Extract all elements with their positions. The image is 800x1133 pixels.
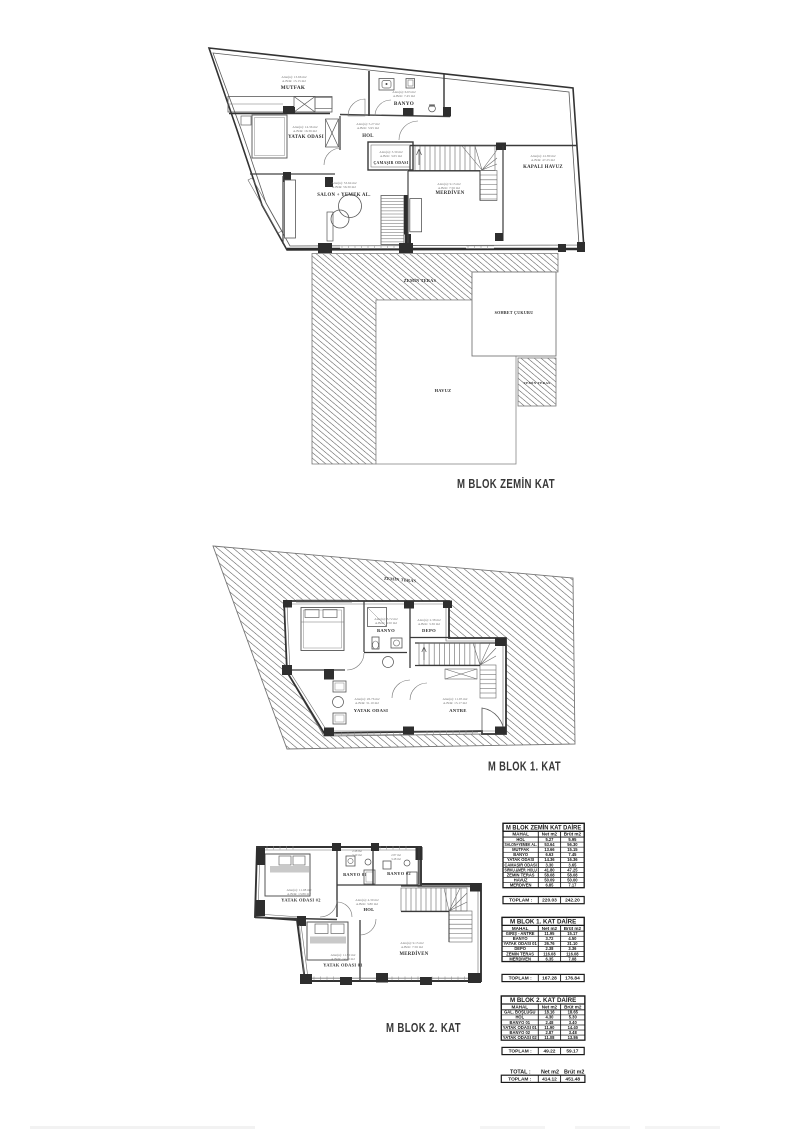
svg-text:MERDİVEN: MERDİVEN (399, 951, 428, 957)
svg-text:A.Brüt: 47.25 m2: A.Brüt: 47.25 m2 (531, 158, 555, 162)
svg-text:ANTRE: ANTRE (449, 708, 467, 713)
svg-text:TOPLAM :: TOPLAM : (509, 898, 532, 904)
svg-text:ZEMİN TERAS: ZEMİN TERAS (404, 278, 437, 283)
svg-text:A.Brüt: 7.56 m2: A.Brüt: 7.56 m2 (401, 945, 424, 949)
svg-text:A.Brüt: 15.15 m2: A.Brüt: 15.15 m2 (282, 79, 306, 83)
svg-text:176.84: 176.84 (565, 976, 580, 982)
svg-text:MAHAL: MAHAL (512, 1004, 529, 1009)
svg-text:3.40 m2: 3.40 m2 (352, 853, 362, 857)
svg-text:A.Brüt: 16.36 m2: A.Brüt: 16.36 m2 (293, 129, 317, 133)
svg-text:6.85: 6.85 (545, 883, 554, 888)
svg-text:Brüt m2: Brüt m2 (564, 1004, 582, 1009)
svg-text:49.22: 49.22 (543, 1049, 555, 1055)
svg-text:A.Brüt: 3.36 m2: A.Brüt: 3.36 m2 (418, 622, 441, 626)
svg-text:MERDİVEN: MERDİVEN (509, 956, 531, 961)
svg-text:Brüt m2: Brüt m2 (564, 926, 582, 931)
svg-text:ÇAMAŞIR ODASI: ÇAMAŞIR ODASI (373, 161, 408, 165)
svg-text:A.Brüt: 5.95 m2: A.Brüt: 5.95 m2 (357, 126, 380, 130)
svg-text:DEPO: DEPO (422, 628, 436, 633)
svg-text:A.Brüt: 13.86 m2: A.Brüt: 13.86 m2 (287, 892, 311, 896)
svg-text:MAHAL: MAHAL (512, 926, 529, 931)
svg-text:Brüt m2: Brüt m2 (564, 832, 582, 837)
svg-text:7.17: 7.17 (568, 883, 577, 888)
svg-text:M BLOK ZEMİN KAT: M BLOK ZEMİN KAT (457, 476, 555, 491)
svg-text:A.Brüt: 7.45 m2: A.Brüt: 7.45 m2 (393, 94, 416, 98)
svg-text:ZEMİN TERAS: ZEMİN TERAS (524, 380, 551, 385)
svg-text:BANYO: BANYO (377, 628, 395, 633)
svg-text:BANYO: BANYO (394, 101, 414, 107)
svg-text:MUTFAK: MUTFAK (281, 85, 305, 91)
svg-text:Net m2: Net m2 (542, 1004, 558, 1009)
svg-text:YATAK ODASI 02: YATAK ODASI 02 (503, 1035, 538, 1040)
svg-text:A.Brüt: 3.65 m2: A.Brüt: 3.65 m2 (380, 154, 403, 158)
svg-text:A.Brüt: 15.17 m2: A.Brüt: 15.17 m2 (443, 701, 467, 705)
svg-text:SOHBET ÇUKURU: SOHBET ÇUKURU (495, 310, 534, 315)
svg-text:SALON + YEMEK AL.: SALON + YEMEK AL. (317, 193, 371, 198)
svg-text:167.28: 167.28 (542, 976, 557, 982)
svg-text:13.86: 13.86 (568, 1035, 579, 1040)
svg-text:KAPALI HAVUZ: KAPALI HAVUZ (523, 165, 563, 170)
svg-text:MAHAL: MAHAL (512, 832, 529, 837)
svg-text:YATAK ODASI #2: YATAK ODASI #2 (281, 898, 321, 903)
svg-text:YATAK ODASI: YATAK ODASI (288, 135, 324, 140)
svg-text:M BLOK 2. KAT: M BLOK 2. KAT (386, 1020, 461, 1035)
svg-text:6.35: 6.35 (545, 956, 554, 961)
svg-text:A.Brüt: 7.56 m2: A.Brüt: 7.56 m2 (438, 186, 461, 190)
svg-text:M BLOK 1. KAT: M BLOK 1. KAT (488, 759, 561, 774)
svg-text:M BLOK ZEMİN KAT DAİRE: M BLOK ZEMİN KAT DAİRE (506, 824, 581, 831)
svg-text:242.20: 242.20 (565, 898, 580, 904)
svg-text:A.Brüt: 3.80 m2: A.Brüt: 3.80 m2 (356, 902, 379, 906)
svg-text:A.Brüt: 56.30 m2: A.Brüt: 56.30 m2 (332, 185, 356, 189)
svg-text:TOPLAM :: TOPLAM : (509, 1049, 532, 1055)
svg-text:M BLOK 2. KAT DAİRE: M BLOK 2. KAT DAİRE (510, 997, 576, 1004)
svg-text:HOL: HOL (362, 134, 374, 139)
svg-text:414.12: 414.12 (542, 1076, 557, 1082)
svg-text:TOPLAM :: TOPLAM : (508, 1076, 531, 1082)
svg-text:Net m2: Net m2 (542, 832, 558, 837)
svg-text:HOL: HOL (363, 907, 374, 912)
svg-text:7.08: 7.08 (568, 956, 577, 961)
svg-text:MERDİVEN: MERDİVEN (510, 883, 532, 888)
svg-text:BANYO 01: BANYO 01 (343, 872, 367, 877)
svg-text:HAVUZ: HAVUZ (435, 388, 452, 393)
svg-text:451.48: 451.48 (565, 1076, 580, 1082)
svg-text:A.Brüt: 31.10 m2: A.Brüt: 31.10 m2 (355, 701, 379, 705)
svg-text:Net m2: Net m2 (542, 926, 558, 931)
svg-text:MERDİVEN: MERDİVEN (435, 190, 464, 196)
svg-text:TOPLAM :: TOPLAM : (509, 976, 532, 982)
svg-text:11.08: 11.08 (544, 1035, 555, 1040)
svg-text:220.03: 220.03 (542, 898, 557, 904)
svg-text:M BLOK 1. KAT DAİRE: M BLOK 1. KAT DAİRE (510, 918, 576, 925)
svg-text:A.Brüt: 4.50 m2: A.Brüt: 4.50 m2 (375, 621, 398, 625)
svg-text:3.48 m2: 3.48 m2 (391, 857, 401, 861)
svg-text:A.Brüt: 14.40 m2: A.Brüt: 14.40 m2 (331, 957, 355, 961)
svg-text:YATAK ODASI 01: YATAK ODASI 01 (323, 963, 363, 968)
svg-text:YATAK ODASI: YATAK ODASI (354, 708, 388, 713)
svg-text:59.17: 59.17 (566, 1049, 578, 1055)
